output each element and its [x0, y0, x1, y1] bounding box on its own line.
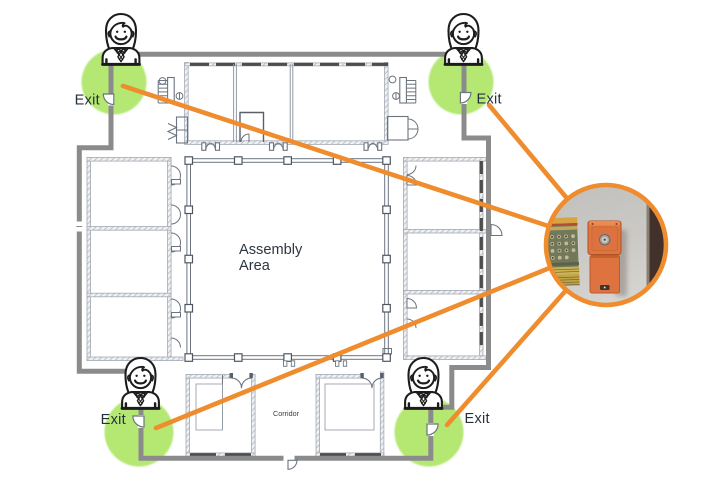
svg-text:Exit: Exit: [101, 412, 126, 428]
svg-text:Exit: Exit: [75, 92, 100, 108]
svg-text:Exit: Exit: [465, 411, 490, 427]
svg-text:Exit: Exit: [477, 92, 502, 108]
svg-text:Corridor: Corridor: [273, 409, 300, 418]
svg-text:Assembly: Assembly: [239, 242, 303, 258]
svg-text:Area: Area: [239, 258, 271, 274]
